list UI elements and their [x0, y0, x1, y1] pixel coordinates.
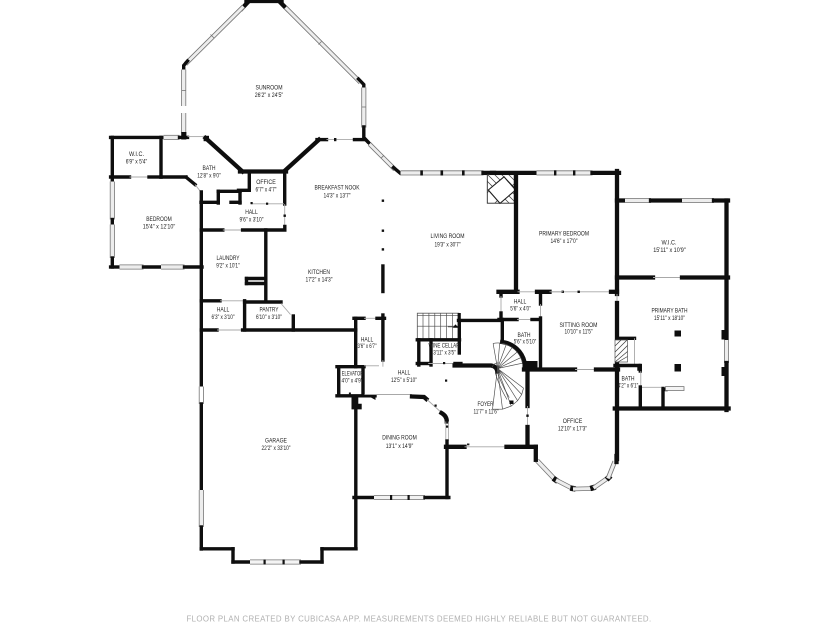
svg-text:FOYER: FOYER — [478, 401, 494, 408]
svg-text:PRIMARY BATH: PRIMARY BATH — [652, 308, 688, 315]
svg-text:OFFICE: OFFICE — [563, 418, 583, 425]
svg-text:3'11" x 3'5": 3'11" x 3'5" — [433, 350, 456, 357]
svg-text:4'0" x 4'9": 4'0" x 4'9" — [342, 378, 363, 385]
svg-text:12'8" x 9'0": 12'8" x 9'0" — [197, 173, 221, 180]
svg-text:6'9" x 5'4": 6'9" x 5'4" — [126, 159, 148, 166]
svg-text:ELEVATOR: ELEVATOR — [342, 371, 364, 378]
svg-text:BATH: BATH — [622, 376, 635, 383]
svg-text:BREAKFAST NOOK: BREAKFAST NOOK — [315, 185, 361, 192]
svg-text:6'7" x 4'7": 6'7" x 4'7" — [256, 187, 277, 194]
svg-text:WINE CELLAR: WINE CELLAR — [429, 343, 460, 350]
svg-text:10'10" x 11'5": 10'10" x 11'5" — [565, 329, 593, 336]
svg-text:PRIMARY BEDROOM: PRIMARY BEDROOM — [539, 231, 589, 238]
svg-text:19'3" x 30'7": 19'3" x 30'7" — [435, 242, 461, 249]
svg-text:PANTRY: PANTRY — [260, 307, 280, 314]
svg-text:15'11" x 18'10": 15'11" x 18'10" — [654, 315, 685, 322]
svg-text:HALL: HALL — [245, 209, 258, 216]
svg-text:13'1" x 14'9": 13'1" x 14'9" — [386, 443, 414, 450]
svg-text:15'11" x 10'9": 15'11" x 10'9" — [653, 247, 686, 254]
svg-text:14'3" x 13'7": 14'3" x 13'7" — [324, 193, 351, 200]
svg-text:3'6" x 6'7": 3'6" x 6'7" — [358, 343, 377, 350]
svg-text:DINING ROOM: DINING ROOM — [382, 435, 417, 442]
svg-text:11'7" x 11'6": 11'7" x 11'6" — [474, 409, 499, 416]
svg-text:5'6" x 5'10": 5'6" x 5'10" — [514, 339, 537, 346]
svg-text:4'2" x 6'1": 4'2" x 6'1" — [618, 383, 639, 390]
svg-text:15'4" x 12'10": 15'4" x 12'10" — [143, 224, 176, 231]
svg-text:HALL: HALL — [398, 370, 411, 377]
svg-text:9'2" x 10'1": 9'2" x 10'1" — [216, 263, 240, 270]
svg-text:KITCHEN: KITCHEN — [308, 269, 330, 276]
svg-text:12'10" x 17'3": 12'10" x 17'3" — [558, 426, 587, 433]
svg-text:22'2" x 33'10": 22'2" x 33'10" — [262, 445, 291, 452]
svg-text:BEDROOM: BEDROOM — [146, 216, 172, 223]
svg-text:W.I.C.: W.I.C. — [662, 240, 677, 247]
svg-text:LIVING ROOM: LIVING ROOM — [431, 233, 465, 240]
svg-text:6'3" x 3'10": 6'3" x 3'10" — [212, 314, 235, 321]
svg-text:9'6" x 3'10": 9'6" x 3'10" — [240, 217, 264, 224]
svg-text:12'5" x 5'10": 12'5" x 5'10" — [391, 377, 417, 384]
svg-text:LAUNDRY: LAUNDRY — [217, 255, 241, 262]
svg-text:14'6" x 17'0": 14'6" x 17'0" — [551, 238, 578, 245]
svg-text:26'2" x 24'5": 26'2" x 24'5" — [255, 92, 284, 99]
svg-text:6'10" x 3'10": 6'10" x 3'10" — [256, 314, 282, 321]
svg-text:OFFICE: OFFICE — [256, 179, 276, 186]
svg-text:HALL: HALL — [514, 299, 527, 306]
svg-text:BATH: BATH — [203, 165, 216, 172]
svg-text:W.I.C.: W.I.C. — [129, 151, 144, 158]
svg-text:17'2" x 14'3": 17'2" x 14'3" — [306, 277, 333, 284]
svg-text:GARAGE: GARAGE — [265, 438, 287, 445]
svg-text:HALL: HALL — [217, 307, 230, 314]
svg-text:FLOOR PLAN CREATED BY CUBICASA: FLOOR PLAN CREATED BY CUBICASA APP. MEAS… — [187, 615, 652, 624]
svg-text:SUNROOM: SUNROOM — [256, 84, 283, 91]
svg-text:5'6" x 4'0": 5'6" x 4'0" — [510, 306, 531, 313]
